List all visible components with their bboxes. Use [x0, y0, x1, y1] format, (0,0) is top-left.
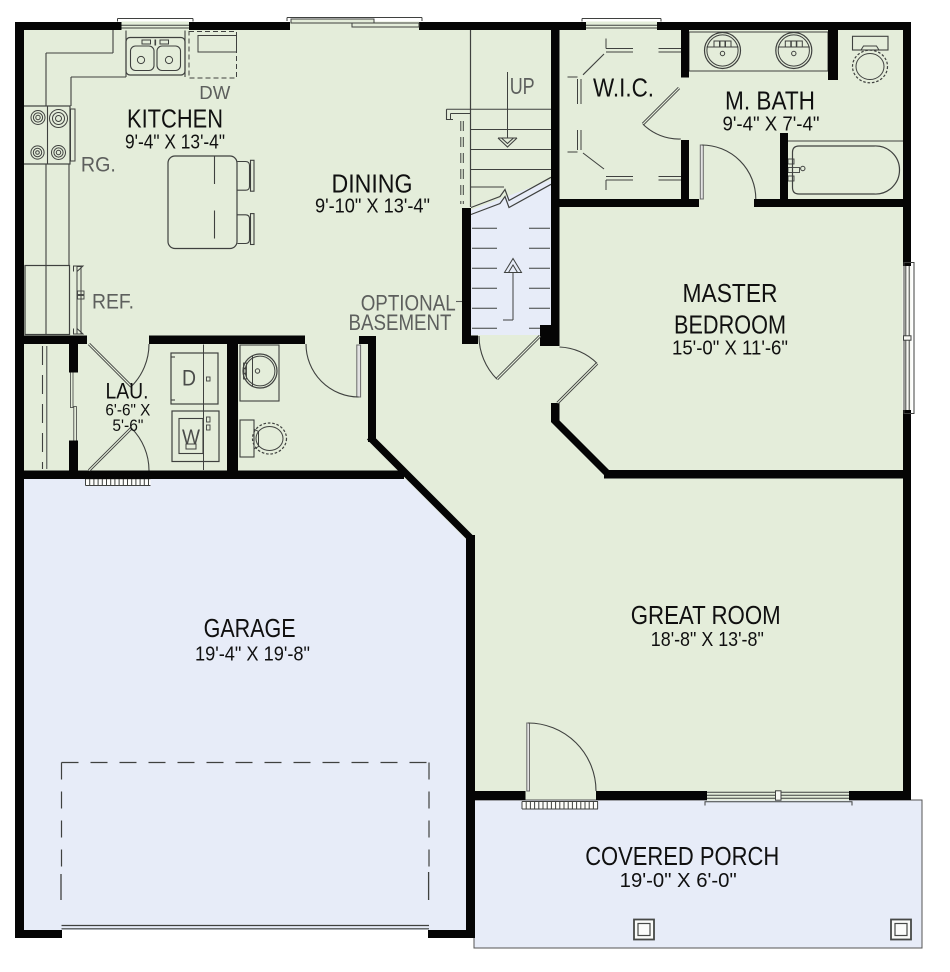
svg-text:W.I.C.: W.I.C.: [593, 72, 654, 102]
svg-text:9'-10" X 13'-4": 9'-10" X 13'-4": [315, 196, 430, 218]
svg-text:5'-6": 5'-6": [112, 417, 143, 435]
svg-text:9'-4" X 13'-4": 9'-4" X 13'-4": [125, 132, 225, 154]
svg-text:MASTER: MASTER: [683, 278, 778, 308]
svg-text:GARAGE: GARAGE: [204, 613, 296, 643]
svg-text:RG.: RG.: [81, 154, 116, 177]
svg-text:19'-4" X 19'-8": 19'-4" X 19'-8": [195, 643, 310, 665]
svg-text:GREAT ROOM: GREAT ROOM: [631, 600, 781, 630]
svg-text:BASEMENT: BASEMENT: [349, 310, 452, 335]
svg-text:M. BATH: M. BATH: [725, 86, 815, 116]
svg-text:W: W: [182, 427, 200, 449]
svg-text:UP: UP: [510, 73, 535, 99]
svg-text:DW: DW: [199, 83, 230, 103]
svg-text:9'-4" X 7'-4": 9'-4" X 7'-4": [723, 114, 820, 136]
svg-text:DINING: DINING: [332, 169, 413, 199]
svg-text:18'-8" X 13'-8": 18'-8" X 13'-8": [651, 629, 764, 651]
svg-text:LAU.: LAU.: [106, 379, 149, 404]
svg-text:REF.: REF.: [92, 291, 134, 314]
svg-text:15'-0" X 11'-6": 15'-0" X 11'-6": [672, 338, 788, 360]
svg-text:D: D: [182, 366, 196, 391]
svg-text:COVERED PORCH: COVERED PORCH: [585, 841, 779, 871]
svg-text:KITCHEN: KITCHEN: [127, 104, 223, 134]
svg-text:19'-0" X 6'-0": 19'-0" X 6'-0": [620, 870, 737, 892]
svg-text:BEDROOM: BEDROOM: [674, 310, 786, 340]
